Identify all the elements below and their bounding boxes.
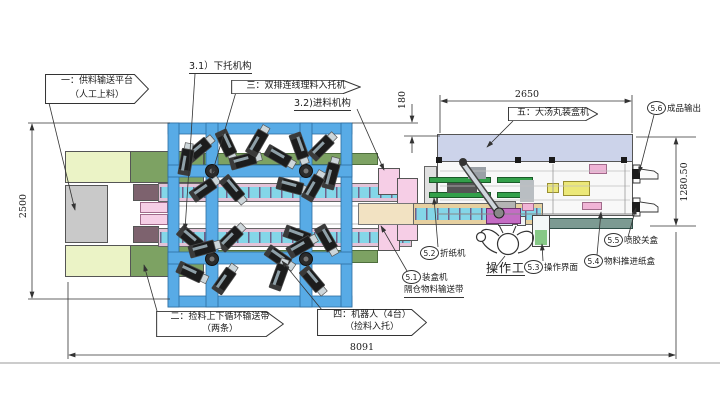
callout-tray-loader: 三：双排连线理料入托机 (231, 80, 361, 94)
item-5-2-paper-folder: 5.2 折纸机 (420, 246, 466, 260)
item-5-5-glue-closer: 5.5 喷胶关盒 (604, 233, 658, 247)
feed-platform-bottom-yellow-block (65, 245, 131, 277)
arm-purple-base (486, 208, 521, 224)
label-infeed-mechanism: 3.2)进料机构 (294, 98, 351, 111)
callout-feed-line2: （人工上料） (45, 88, 149, 102)
robot-mount-node (300, 165, 313, 178)
lower-green-strip (204, 250, 378, 263)
hmi-tank-green-fill (535, 230, 547, 245)
dim-feed-gap: 180 (397, 82, 408, 118)
item-5-5-circle: 5.5 (604, 233, 623, 247)
callout-circulation-line2: （两条） (156, 323, 284, 335)
bolt-1 (436, 157, 442, 163)
item-5-1-text: 装盒机 (422, 271, 448, 283)
bolt-3 (549, 157, 555, 163)
lower-circulation-conveyor (158, 228, 412, 247)
item-5-3-hmi: 5.3 操作界面 (524, 260, 578, 274)
robot-mount-node (206, 165, 219, 178)
dim-cartoner-length: 2650 (495, 89, 559, 100)
merge-cream-platform (358, 203, 414, 225)
cartoner-pink-part-3 (522, 203, 534, 211)
pick-robot (299, 265, 329, 297)
output-chute-upper (632, 165, 658, 183)
callout-robots: 四：机器人（4台） （捡料入托） (317, 309, 427, 336)
upper-conveyor-cells (160, 187, 410, 198)
item-5-4-text: 物料推进纸盒 (604, 255, 655, 267)
cartoner-pink-part-1 (589, 164, 607, 174)
cartoner-lavender-hood (437, 134, 633, 162)
dim-left-height: 2500 (18, 182, 29, 230)
callout-feed-line1: 一：供料输送平台 (45, 74, 149, 88)
callout-robots-line1: 四：机器人（4台） (317, 309, 427, 321)
cartoner-pink-part-2 (582, 202, 602, 210)
callout-tray-loader-text: 三：双排连线理料入托机 (231, 80, 361, 93)
output-chute-lower (632, 198, 658, 216)
feed-platform-bottom-green-block (130, 245, 204, 277)
callout-cartoner-text: 五：大汤丸装盒机 (508, 107, 598, 120)
item-5-2-circle: 5.2 (420, 246, 439, 260)
feed-platform-gray-block (65, 185, 108, 243)
bolt-2 (515, 157, 521, 163)
label-lower-support: 3.1）下托机构 (189, 61, 252, 74)
item-5-6-text: 成品输出 (667, 102, 701, 114)
cartoner-yellow-block-small (547, 183, 559, 193)
folder-gray-mechanism (468, 167, 486, 179)
label-compartment-belt: 隔仓物料输送带 (404, 285, 464, 298)
cad-layout-drawing: 2500 8091 2650 180 1280.50 一：供料输送平台 （人工上… (0, 0, 720, 419)
feed-platform-top-green-block (130, 151, 204, 183)
glue-teal-band (543, 218, 633, 229)
cartoner-gray-column (520, 180, 534, 202)
cartoner-yellow-block (563, 181, 590, 196)
pick-robot (212, 262, 240, 295)
feed-pink-block-1 (140, 202, 168, 213)
item-5-1-cartoner: 5.1 装盒机 (402, 270, 448, 284)
folder-dark-mechanism (447, 183, 477, 193)
callout-cartoner: 五：大汤丸装盒机 (508, 107, 598, 121)
feed-platform-top-yellow-block (65, 151, 131, 183)
bolt-4 (621, 157, 627, 163)
callout-circulation-line1: 二：捡料上下循环输送带 (156, 311, 284, 323)
callout-circulation-belt: 二：捡料上下循环输送带 （两条） (156, 311, 284, 337)
callout-robots-line2: （捡料入托） (317, 321, 427, 333)
item-5-2-text: 折纸机 (440, 247, 466, 259)
tray-corridor-lines (168, 206, 358, 224)
feed-mauve-block-lower (133, 226, 159, 243)
label-operator: 操作工 (486, 263, 525, 276)
item-5-6-product-output: 5.6 成品输出 (647, 101, 701, 115)
feed-mauve-block-upper (133, 184, 159, 201)
callout-feed-platform: 一：供料输送平台 （人工上料） (45, 74, 149, 104)
operator-figure (477, 225, 534, 255)
item-5-1-circle: 5.1 (402, 270, 421, 284)
item-5-3-circle: 5.3 (524, 260, 543, 274)
item-5-5-text: 喷胶关盒 (624, 234, 658, 246)
feed-pink-block-2 (140, 214, 168, 225)
upper-circulation-conveyor (158, 183, 412, 202)
item-5-4-pusher: 5.4 物料推进纸盒 (584, 254, 655, 268)
item-5-4-circle: 5.4 (584, 254, 603, 268)
upper-green-strip (204, 153, 378, 165)
lower-conveyor-cells (160, 232, 410, 243)
item-5-6-circle: 5.6 (647, 101, 666, 115)
item-5-3-text: 操作界面 (544, 261, 578, 273)
dim-total-length: 8091 (330, 342, 394, 353)
dim-right-height: 1280.50 (679, 152, 690, 212)
